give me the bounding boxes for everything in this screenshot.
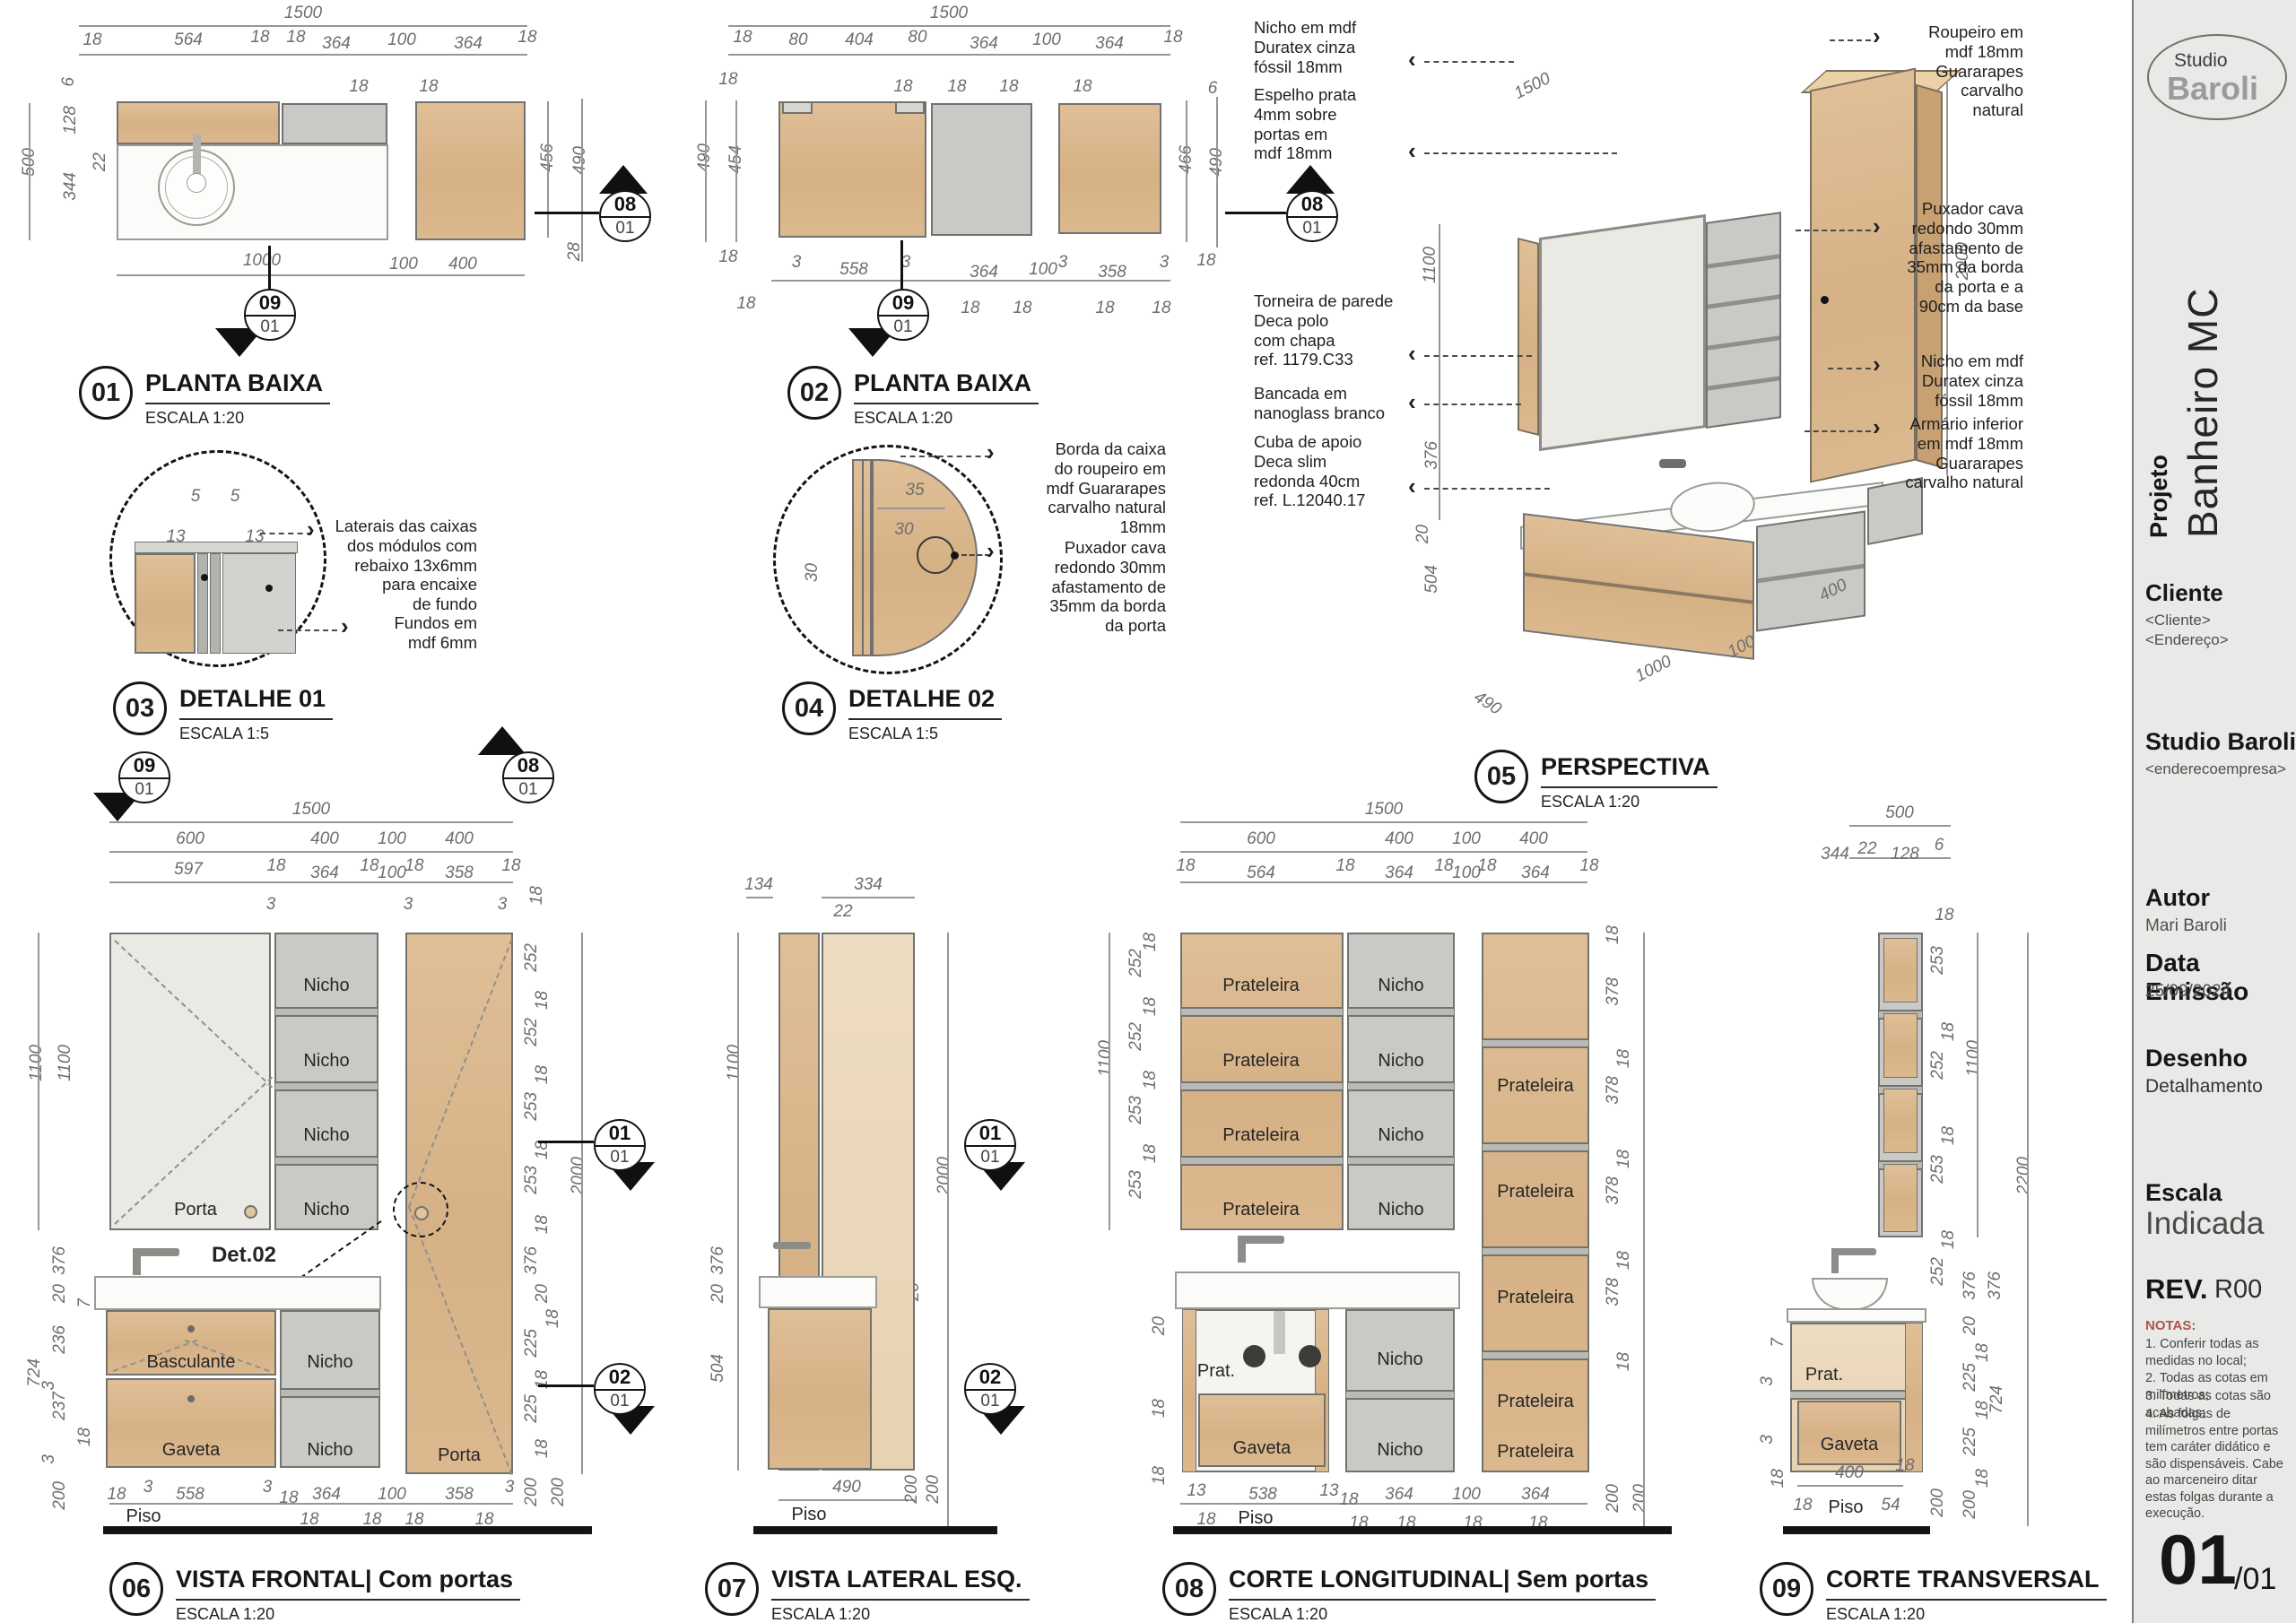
shelf-separator [1483,1142,1588,1152]
shelf-label-abbrev: Prat. [1197,1361,1235,1382]
section-line [268,246,271,289]
revision-value: R00 [2214,1275,2262,1305]
section-marker-02: 02 01 [964,1363,1016,1415]
dim-label: 6 [1935,836,1944,855]
dim-label: 404 [845,30,874,50]
floor-label: Piso [792,1505,827,1525]
dim-label: 128 [1891,845,1919,864]
dim-label: 80 [908,28,926,48]
dim-label: 18 [349,77,368,97]
dim-label: 13 [1187,1481,1205,1501]
view-label-07: 07 VISTA LATERAL ESQ. ESCALA 1:20 [705,1562,1030,1623]
dim-line [1643,933,1645,1526]
leader-arrow: › [1873,418,1881,436]
dim-label: 6 [1208,79,1218,99]
dim-label: 200 [924,1475,944,1504]
dim-label: 18 [947,77,966,97]
dim-label: 5 [191,487,201,507]
annotation: Cuba de apoio Deca slim redonda 40cm ref… [1254,432,1405,510]
drawer-seam [1525,572,1752,603]
view-title: PLANTA BAIXA [854,366,1039,404]
floor-line [1783,1526,1930,1534]
dim-label: 100 [387,30,416,50]
shelf-line [1708,255,1779,269]
section-line [535,212,599,214]
dim-label: 225 [522,1329,542,1358]
niche-label: Nicho [303,1051,349,1072]
dim-label: 22 [91,152,110,171]
section-line [900,240,903,289]
dim-label: 400 [1835,1463,1864,1483]
countertop [94,1276,381,1310]
dim-label: 490 [1470,688,1505,720]
dim-label: 3 [1058,253,1068,273]
faucet-spout [1238,1236,1246,1263]
view-label-05: 05 PERSPECTIVA ESCALA 1:20 [1474,750,1718,811]
panel-joint-line [862,461,864,655]
shelf-label: Prateleira [1497,1288,1574,1308]
valve [1299,1345,1321,1367]
view-scale: ESCALA 1:5 [848,725,1002,743]
leader-line [1424,355,1532,357]
dim-label: 18 [533,1065,552,1084]
dim-label: 400 [1385,829,1413,849]
floor-line [1173,1526,1672,1534]
dim-label: 18 [1163,28,1182,48]
dim-label: 1500 [284,4,322,23]
dim-label: 558 [176,1485,204,1505]
dim-label: 18 [533,991,552,1010]
marker-number: 08 [601,192,649,218]
view-scale: ESCALA 1:5 [179,725,333,743]
dim-label: 564 [1247,864,1275,883]
niche-module-plan [931,103,1032,236]
view-number: 05 [1487,762,1516,792]
dim-line [1797,1485,1903,1487]
view-scale: ESCALA 1:20 [176,1605,520,1623]
dim-label: 364 [312,1485,341,1505]
dim-line [547,101,549,238]
dim-label: 3 [143,1478,153,1497]
leader-arrow: › [1873,355,1881,373]
dim-label: 100 [1032,30,1061,50]
dim-label: 1100 [1096,1040,1116,1077]
drawing-sheet: 1500 18 564 18 18 364 100 364 18 18 18 6… [0,0,2296,1623]
leader-line [1830,39,1871,41]
shelf-label: Prateleira [1497,1392,1574,1412]
shelf-separator [281,1388,379,1398]
dim-label: 22 [1857,839,1876,859]
dim-label: 18 [533,1215,552,1234]
dim-label: 253 [522,1092,542,1121]
dim-line [581,99,583,262]
view-number: 04 [795,694,823,724]
recessed-handle-circle [917,536,954,574]
drawing-type-value: Detalhamento [2145,1076,2263,1098]
dim-label: 3 [498,895,508,915]
countertop-cut [1175,1271,1460,1309]
dim-label: 80 [788,30,807,50]
dim-label: 253 [1126,1096,1146,1124]
view-scale: ESCALA 1:20 [1541,793,1718,811]
dim-label: 35 [905,481,924,500]
dim-label: 3 [266,895,276,915]
dim-line [1216,97,1218,247]
floor-label: Piso [126,1506,161,1527]
drawer-label: Gaveta [1233,1438,1291,1459]
shelf-separator [1483,1038,1588,1048]
niche-label: Nicho [1378,1051,1423,1072]
dim-label: 18 [286,28,305,48]
dim-line [735,100,737,242]
logo-text-top: Studio [2174,50,2228,72]
dim-label: 200 [1928,1488,1948,1517]
dim-label: 358 [445,864,474,883]
leader-line [1828,368,1871,369]
niche-label: Nicho [1377,1440,1422,1461]
shelf-label: Prateleira [1222,976,1300,996]
marker-sheet: 01 [879,317,927,337]
section-marker-09: 09 01 [877,289,929,341]
dim-label: 100 [378,864,406,883]
side-panel-tab [895,101,925,114]
floor-line [753,1526,997,1534]
drawing-type-label: Desenho [2145,1045,2248,1072]
leader-arrow: › [987,542,995,560]
dim-label: 1100 [56,1045,75,1081]
module-side-wood [135,553,196,654]
wall-faucet [773,1242,811,1249]
dim-label: 252 [522,943,542,972]
dim-label: 2000 [569,1157,588,1194]
dim-label: 364 [454,34,483,54]
dim-label: 3 [1758,1376,1778,1386]
dim-label: 18 [1604,925,1623,944]
door-knob [244,1205,257,1219]
dim-label: 1500 [930,4,968,23]
dim-label: 1500 [1511,69,1554,104]
dim-label: 504 [709,1354,728,1383]
shelf-separator [1346,1390,1454,1400]
wall-faucet [1659,459,1686,468]
dim-line [771,280,1170,282]
dim-label: 18 [517,28,536,48]
view-number: 09 [1772,1575,1801,1604]
dim-line [746,897,773,898]
leader-arrow: › [307,520,315,538]
dim-label: 2000 [935,1157,954,1194]
shelf-label: Prateleira [1222,1051,1300,1072]
dim-label: 1100 [1964,1040,1984,1077]
dim-label: 18 [533,1439,552,1458]
shelf-line [1758,564,1864,584]
section-marker-09: 09 01 [118,751,170,803]
dim-label: 200 [1631,1484,1650,1513]
marker-sheet: 01 [966,1391,1014,1411]
dim-label: 334 [854,875,883,895]
dim-label: 18 [999,77,1018,97]
dim-label: 18 [1614,1251,1634,1270]
dim-label: 18 [250,28,269,48]
view-title: DETALHE 01 [179,681,333,720]
dim-label: 3 [263,1478,273,1497]
section-line [1225,212,1286,214]
studio-name: Studio Baroli [2145,728,2296,756]
niche-label: Nicho [303,1200,349,1220]
sheet-total: /01 [2234,1562,2276,1597]
annotation: Torneira de parede Deca polo com chapa r… [1254,291,1405,369]
dim-label: 18 [1095,299,1114,318]
marker-number: 09 [246,291,294,317]
dim-label: 18 [1939,1022,1959,1041]
vanity-open-shelves [1756,510,1865,631]
dim-label: 20 [1150,1316,1170,1335]
drawer-label: Gaveta [162,1440,220,1461]
leader-dot [265,585,273,592]
dim-label: 18 [1793,1496,1812,1515]
detail-callout-circle [393,1182,448,1237]
marker-number: 01 [966,1121,1014,1147]
shelf-label: Prateleira [1497,1182,1574,1202]
dim-label: 200 [1961,1490,1980,1519]
annotation: Puxador cava redondo 30mm afastamento de… [1889,199,2023,317]
shelf-separator [275,1007,378,1017]
dim-label: 344 [61,172,81,201]
floor-line [103,1526,592,1534]
dim-line [581,933,583,1474]
shelf-line [1708,295,1779,309]
leader-arrow: ‹ [1408,142,1416,160]
dim-label: 13 [166,527,185,547]
dim-line [1977,933,1979,1237]
dim-label: 18 [1477,856,1496,876]
dim-label: 7 [1769,1338,1788,1348]
dim-label: 18 [1196,251,1215,271]
valve [1243,1345,1265,1367]
section-marker-01: 01 01 [594,1119,646,1171]
shelf-separator [1181,1081,1343,1091]
dim-label: 225 [1961,1363,1980,1392]
dim-label: 504 [1422,565,1442,594]
section-line [538,1141,594,1143]
shelf-separator [275,1081,378,1091]
author-value: Mari Baroli [2145,916,2227,936]
dim-label: 376 [1961,1271,1980,1300]
studio-address: <enderecoempresa> [2145,760,2286,778]
annotation: Puxador cava redondo 30mm afastamento de… [1003,538,1166,636]
dim-label: 364 [310,864,339,883]
dim-label: 100 [1452,829,1481,849]
dim-line [947,933,949,1526]
niche-cabinet-plan [282,103,387,144]
dim-label: 18 [1141,1071,1161,1089]
dim-label: 724 [25,1358,45,1387]
client-label: Cliente [2145,579,2223,607]
leader-line [1424,488,1550,490]
view-scale: ESCALA 1:20 [145,409,330,428]
section-marker-08: 08 01 [599,190,651,242]
view-number: 02 [800,378,829,408]
dim-label: 1000 [1632,652,1675,687]
dim-label: 18 [1141,997,1161,1016]
leader-line [278,629,337,631]
drawer-label: Gaveta [1821,1435,1878,1455]
dim-label: 3 [404,895,413,915]
annotation: Fundos em mdf 6mm [359,613,477,653]
view-number: 01 [91,378,120,408]
dim-label: 200 [50,1481,70,1510]
dim-label: 100 [378,829,406,849]
niche-back [1883,1164,1918,1232]
dim-label: 558 [839,260,868,280]
mirror-cabinet-side [1518,238,1539,436]
view-label-06: 06 VISTA FRONTAL| Com portas ESCALA 1:20 [109,1562,520,1623]
dim-label: 376 [1986,1271,2005,1300]
view-title: PLANTA BAIXA [145,366,330,404]
dim-label: 18 [83,30,101,50]
leader-arrow: ‹ [1408,477,1416,495]
dim-label: 236 [50,1325,70,1354]
niche-back [1883,1013,1918,1078]
shelf-separator [1181,1156,1343,1166]
countertop-cut [1787,1308,1926,1323]
dim-line [737,933,739,1471]
drain-circle [187,173,206,193]
dim-label: 253 [1126,1170,1146,1199]
dim-label: 20 [533,1284,552,1303]
view-number: 06 [122,1575,151,1604]
leader-dot [201,574,208,581]
dim-label: 20 [1961,1316,1980,1335]
section-marker-09: 09 01 [244,289,296,341]
dim-label: 1100 [725,1045,744,1081]
dim-label: 18 [107,1485,126,1505]
dim-label: 20 [1413,525,1433,543]
dim-label: 18 [1973,1469,1993,1488]
dim-label: 18 [1769,1469,1788,1488]
dim-label: 18 [1935,906,1953,925]
module-back-panel [222,553,296,654]
marker-number: 08 [504,753,552,779]
note-item: 1. Conferir todas as medidas no local; [2145,1336,2289,1369]
notes-title: NOTAS: [2145,1318,2196,1333]
dim-label: 128 [61,106,81,135]
dim-label: 13 [1319,1481,1338,1501]
dim-label: 500 [1885,803,1914,823]
mirror-door-face [1539,214,1706,451]
dim-line [29,103,30,240]
detail-callout-label: Det.02 [212,1243,276,1268]
dim-label: 538 [1248,1485,1277,1505]
project-label: Projeto [2145,152,2173,538]
marker-sheet: 01 [596,1391,644,1411]
scale-value: Indicada [2145,1206,2264,1242]
module-side-panel [197,553,208,654]
dim-line [1439,224,1440,520]
dim-label: 18 [527,886,547,905]
shelf-label: Prateleira [1222,1200,1300,1220]
dim-label: 18 [1614,1352,1634,1371]
niche-label: Nicho [307,1440,352,1461]
annotation: Borda da caixa do roupeiro em mdf Guarar… [1003,439,1166,537]
view-title: CORTE LONGITUDINAL| Sem portas [1229,1562,1656,1601]
niche-label: Nicho [307,1352,352,1373]
dim-label: 253 [522,1166,542,1194]
logo-text-main: Baroli [2167,70,2258,108]
dim-label: 253 [1928,946,1948,975]
dim-label: 18 [718,70,737,90]
marker-sheet: 01 [120,779,169,800]
dim-label: 18 [1939,1230,1959,1249]
open-shelf-column [1706,212,1781,429]
dim-label: 5 [230,487,240,507]
leader-arrow: › [341,617,349,635]
dim-label: 364 [1385,864,1413,883]
dim-line [38,933,39,1230]
marker-sheet: 01 [1288,218,1336,239]
dim-label: 490 [832,1478,861,1497]
dim-label: 30 [894,520,913,540]
wardrobe-plan [415,101,526,240]
dim-label: 18 [1973,1343,1993,1362]
leader-arrow: › [1873,217,1881,235]
marker-sheet: 01 [966,1147,1014,1167]
niche-label: Nicho [1377,1350,1422,1370]
studio-logo-ellipse: Studio Baroli [2147,34,2287,120]
client-value: <Cliente> [2145,612,2211,629]
dim-label: 18 [404,856,423,876]
niche-back [1883,1089,1918,1153]
vessel-basin-cut [1812,1278,1888,1310]
knob-dot [187,1395,195,1402]
dim-label: 18 [1335,856,1354,876]
dim-line [2027,933,2029,1526]
dim-label: 3 [1160,253,1170,273]
view-scale: ESCALA 1:20 [854,409,1039,428]
dim-line [1849,825,1951,827]
dim-label: 364 [970,34,998,54]
client-address: <Endereço> [2145,631,2229,649]
leader-line [1805,430,1871,432]
annotation: Nicho em mdf Duratex cinza fóssil 18mm [1889,352,2023,410]
section-marker-01: 01 01 [964,1119,1016,1171]
leader-arrow: ‹ [1408,50,1416,68]
niche-label: Nicho [303,976,349,996]
dim-label: 18 [533,1141,552,1159]
dim-label: 364 [1521,1485,1550,1505]
dim-label: 200 [902,1475,922,1504]
dim-label: 18 [893,77,912,97]
niche-label: Nicho [303,1125,349,1146]
dim-label: 100 [1452,864,1481,883]
dim-line [109,821,513,823]
dim-label: 18 [1434,856,1453,876]
leader-line [900,456,990,457]
module-side-panel [210,553,221,654]
view-label-09: 09 CORTE TRANSVERSAL ESCALA 1:20 [1760,1562,2107,1623]
dim-label: 18 [1073,77,1091,97]
niche-label: Nicho [1378,976,1423,996]
dim-label: 20 [50,1284,70,1303]
dim-label: 378 [1604,1176,1623,1205]
annotation: Bancada em nanoglass branco [1254,384,1405,423]
dim-label: 252 [522,1018,542,1046]
door-label: Porta [174,1200,217,1220]
dim-label: 225 [522,1394,542,1423]
dim-label: 18 [1141,1144,1161,1163]
vanity-front [1523,513,1754,660]
view-scale: ESCALA 1:20 [1826,1605,2107,1623]
